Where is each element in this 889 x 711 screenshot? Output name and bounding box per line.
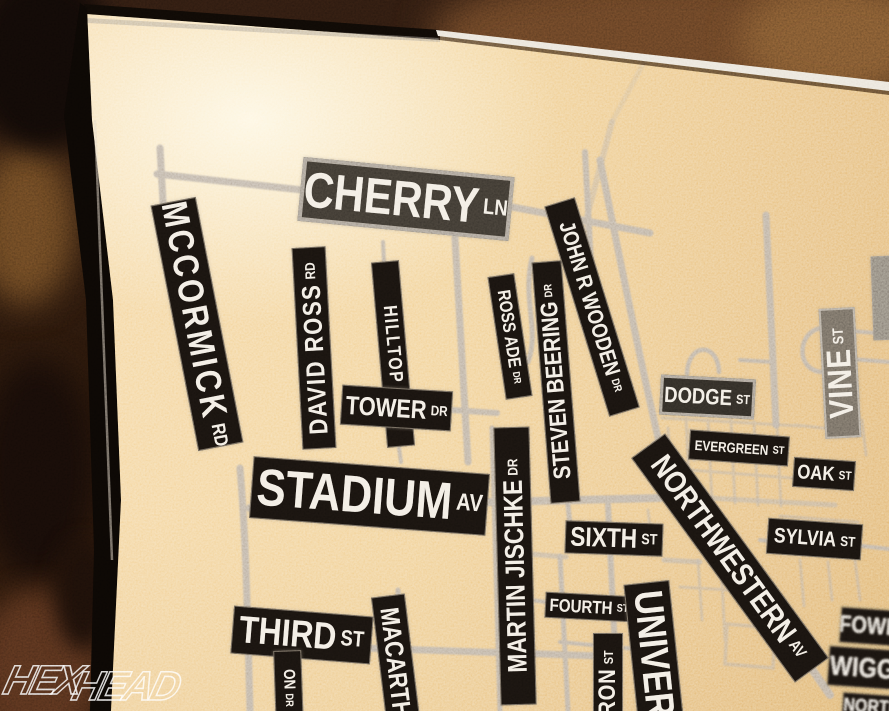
svg-text:HEAD: HEAD	[68, 663, 186, 709]
